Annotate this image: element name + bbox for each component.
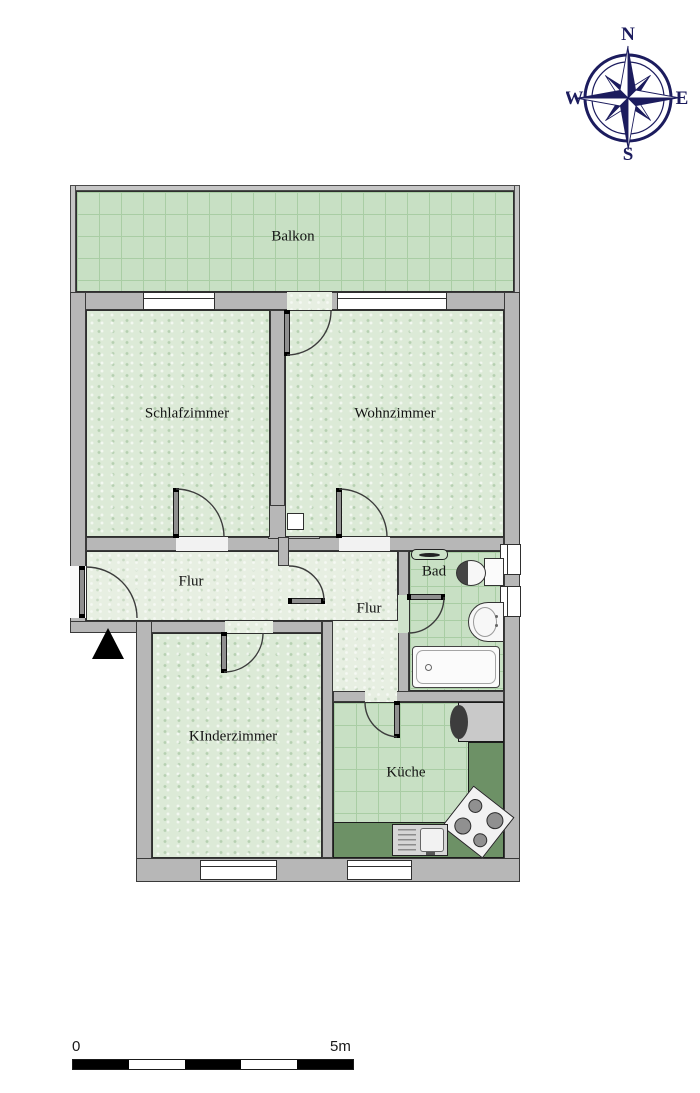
room-label-balkon: Balkon bbox=[271, 229, 314, 246]
scale-segment bbox=[73, 1060, 129, 1069]
scale-segment bbox=[297, 1060, 353, 1069]
door-swing-icon-wohnzimmer bbox=[339, 489, 387, 537]
door-swing-icon-entrance bbox=[86, 567, 137, 618]
room-label-schlafzimmer: Schlafzimmer bbox=[145, 406, 229, 423]
compass-north-label: N bbox=[621, 24, 635, 45]
compass-south-label: S bbox=[623, 144, 634, 162]
room-label-flur-left: Flur bbox=[178, 574, 203, 591]
room-label-wohnzimmer: Wohnzimmer bbox=[354, 406, 435, 423]
room-label-kueche: Küche bbox=[386, 765, 425, 782]
scale-end-label: 5m bbox=[330, 1038, 351, 1055]
entrance-arrow-icon bbox=[92, 628, 124, 659]
compass-east-label: E bbox=[676, 88, 689, 109]
scale-bar bbox=[72, 1059, 354, 1070]
scale-start-label: 0 bbox=[72, 1038, 80, 1055]
scale-segment bbox=[185, 1060, 241, 1069]
scale-segment bbox=[129, 1060, 185, 1069]
door-swing-icon-kueche bbox=[365, 702, 397, 737]
room-label-bad: Bad bbox=[422, 564, 446, 581]
door-swings-overlay bbox=[0, 0, 700, 1093]
compass-rose-icon: N E S W bbox=[566, 22, 690, 162]
room-label-flur-right: Flur bbox=[356, 601, 381, 618]
compass-west-label: W bbox=[566, 88, 584, 109]
scale-segment bbox=[241, 1060, 297, 1069]
door-swing-icon-schlafzimmer bbox=[176, 489, 224, 537]
door-swing-icon-balcony bbox=[287, 311, 331, 355]
room-label-kinderzimmer: KInderzimmer bbox=[189, 729, 277, 746]
door-swing-icon-bad bbox=[408, 597, 444, 633]
floor-plan: N E S W Balkon Schlafzimmer Wohnzimmer F… bbox=[0, 0, 700, 1093]
compass-main-points bbox=[576, 46, 680, 150]
door-swing-icon-flur bbox=[289, 566, 324, 601]
door-swing-icon-kinderzimmer bbox=[224, 633, 263, 672]
